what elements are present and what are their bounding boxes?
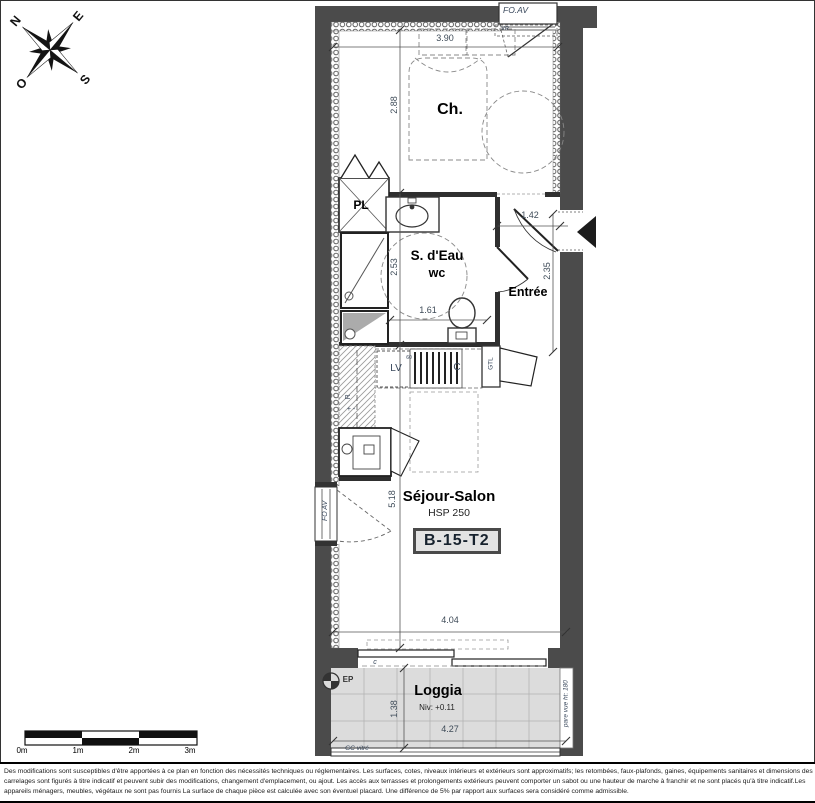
glazing-label: GC vitré xyxy=(335,745,379,752)
compass-west-label: O xyxy=(13,75,30,92)
scale-2m: 2m xyxy=(124,747,144,756)
compass-east-label: E xyxy=(70,9,86,24)
wc-label: wc xyxy=(420,267,454,281)
dim-2-35: 2.35 xyxy=(543,256,553,286)
disclaimer-line-2: carrelages sont figurés à titre indicati… xyxy=(4,777,811,787)
dim-5-18: 5.18 xyxy=(388,484,398,514)
washbasin xyxy=(386,197,439,232)
closet-placard xyxy=(339,155,389,232)
bathroom-label: S. d'Eau xyxy=(402,249,472,264)
compass-south-label: S xyxy=(77,72,93,87)
compass-rose: N E S O xyxy=(0,0,122,122)
bedroom-label: Ch. xyxy=(425,101,475,119)
dishwasher-label: LV xyxy=(384,363,408,374)
ep-label: EP xyxy=(339,676,357,685)
loggia-level-label: Niv: +0.11 xyxy=(402,704,472,713)
dim-1-61: 1.61 xyxy=(408,306,448,316)
living-furniture-outline xyxy=(410,392,478,472)
turning-circle-bedroom xyxy=(482,91,564,173)
fridge-signs-label: + - xyxy=(341,406,361,414)
top-window-label: FO.AV xyxy=(503,6,553,15)
gtl-label: GTL xyxy=(487,349,494,379)
ep-symbol xyxy=(323,673,339,689)
slider-label: c xyxy=(370,659,380,667)
living-hsp-label: HSP 250 xyxy=(394,508,504,520)
loggia-label: Loggia xyxy=(403,684,473,700)
dishwasher-size-label: 60 xyxy=(404,356,414,362)
entry-label: Entrée xyxy=(498,286,558,300)
scale-bar xyxy=(25,731,197,745)
disclaimer-line-3: appareils ménagers, meubles, végétaux ne… xyxy=(4,787,811,797)
dim-4-27: 4.27 xyxy=(430,725,470,735)
dim-2-53: 2.53 xyxy=(390,252,400,282)
pare-vue-label: pare vue ht: 180 xyxy=(562,663,569,745)
toilet xyxy=(448,298,476,343)
cooking-label: C xyxy=(450,362,464,373)
sliding-door xyxy=(358,648,548,668)
legal-disclaimer: Des modifications sont susceptibles d'êt… xyxy=(0,762,815,803)
dim-2-88: 2.88 xyxy=(390,90,400,120)
washing-machine xyxy=(341,311,388,344)
living-room-label: Séjour-Salon xyxy=(394,489,504,506)
fridge-label: R xyxy=(345,389,353,405)
dim-1-38: 1.38 xyxy=(390,694,400,724)
dim-1-42: 1.42 xyxy=(510,211,550,221)
dim-3-90: 3.90 xyxy=(425,34,465,44)
dim-4-04: 4.04 xyxy=(430,616,470,626)
compass-north-label: N xyxy=(7,13,24,29)
closet-label: PL xyxy=(347,199,375,212)
bay-furniture-outline xyxy=(367,640,508,649)
unit-badge: B-15-T2 xyxy=(413,528,501,554)
top-window-vr-label: VR xyxy=(498,26,512,32)
scale-3m: 3m xyxy=(180,747,200,756)
floorplan-drawing: N E S O xyxy=(0,0,815,800)
disclaimer-line-1: Des modifications sont susceptibles d'êt… xyxy=(4,767,811,777)
kitchen-sink-unit xyxy=(339,428,419,476)
left-window-label: FO AV xyxy=(322,489,330,533)
scale-1m: 1m xyxy=(68,747,88,756)
kitchen-door-leaf xyxy=(500,348,537,386)
scale-0m: 0m xyxy=(12,747,32,756)
